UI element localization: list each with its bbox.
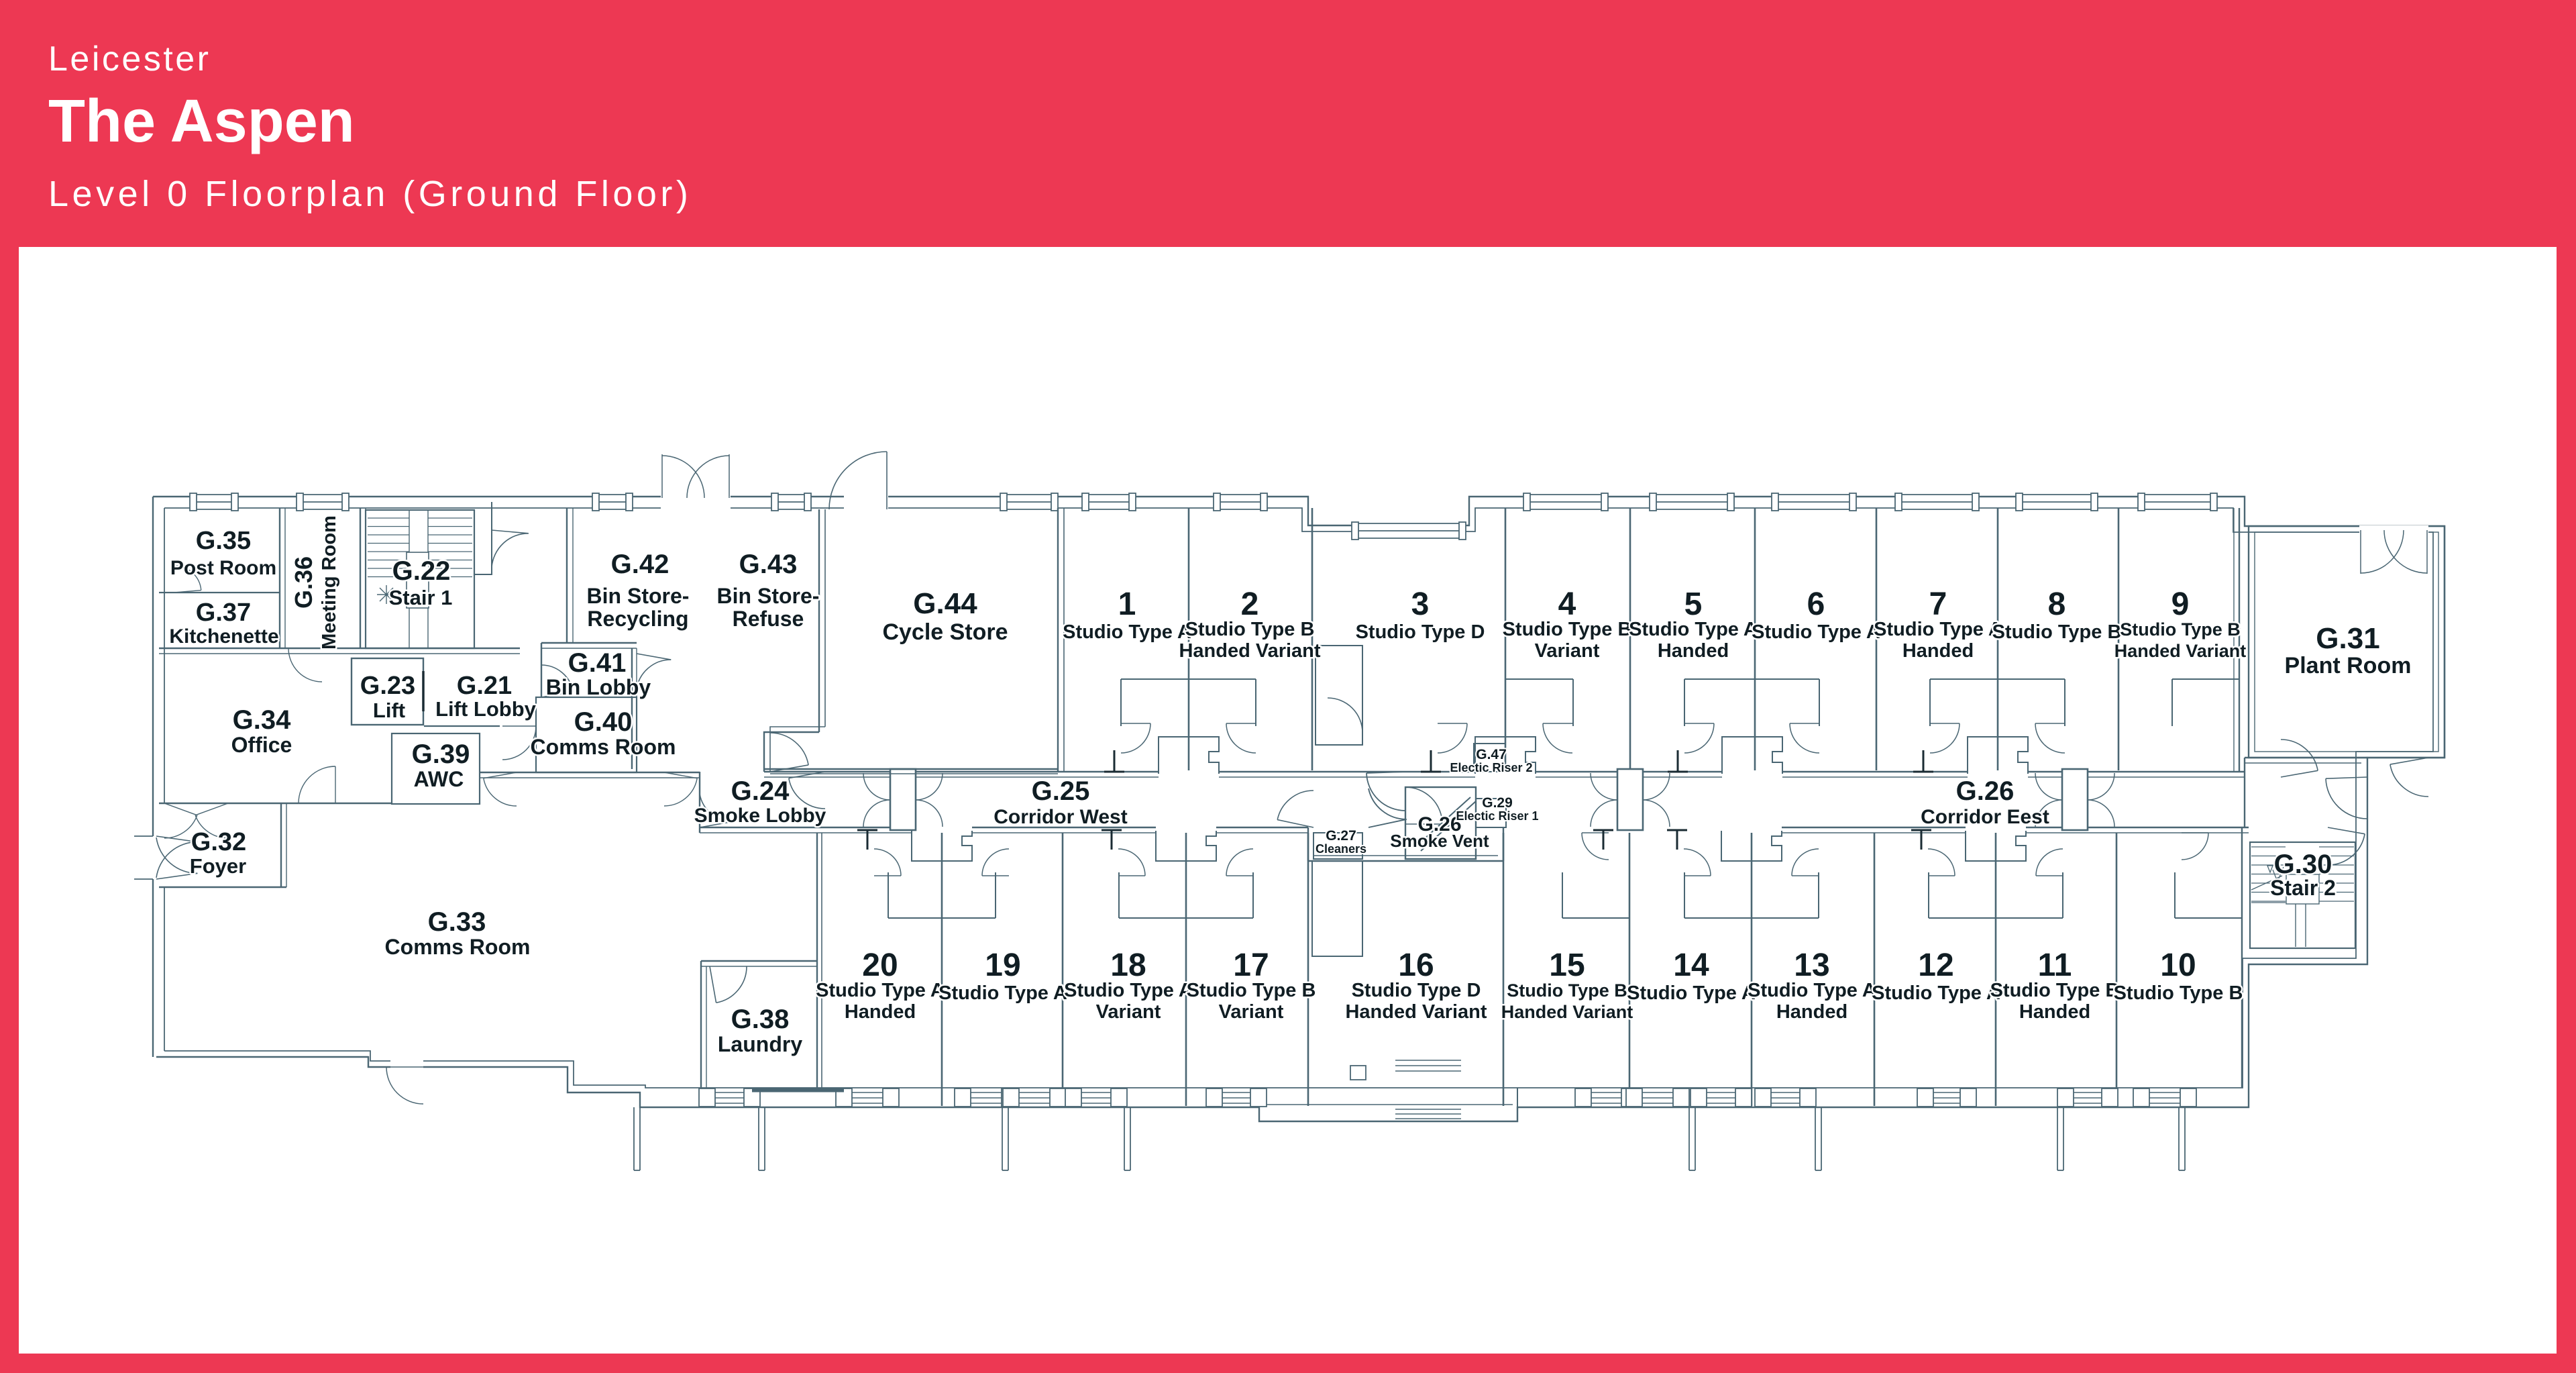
svg-text:Handed: Handed <box>1776 1001 1847 1023</box>
svg-text:Variant: Variant <box>1219 1001 1284 1023</box>
svg-text:Handed Variant: Handed Variant <box>1179 640 1320 662</box>
svg-text:G.33: G.33 <box>428 907 486 937</box>
svg-text:Kitchenette: Kitchenette <box>169 625 278 648</box>
svg-text:Comms Room: Comms Room <box>385 935 531 959</box>
svg-text:G.34: G.34 <box>233 705 291 735</box>
svg-text:Studio Type B: Studio Type B <box>1507 980 1627 1001</box>
svg-text:G.47: G.47 <box>1476 747 1507 762</box>
svg-text:Handed Variant: Handed Variant <box>1501 1002 1633 1022</box>
svg-text:3: 3 <box>1411 587 1430 622</box>
svg-text:Recycling: Recycling <box>587 607 688 631</box>
svg-text:4: 4 <box>1558 587 1576 622</box>
svg-text:7: 7 <box>1929 587 1947 622</box>
svg-text:2: 2 <box>1241 587 1259 622</box>
svg-text:Meeting Room: Meeting Room <box>319 515 340 650</box>
svg-text:Studio Type A: Studio Type A <box>1064 980 1193 1001</box>
svg-text:Variant: Variant <box>1535 640 1600 662</box>
svg-text:Studio Type A: Studio Type A <box>1872 982 2000 1004</box>
svg-text:5: 5 <box>1684 587 1703 622</box>
svg-text:G.32: G.32 <box>191 828 246 856</box>
svg-text:G.25: G.25 <box>1032 776 1090 806</box>
svg-text:Studio Type B: Studio Type B <box>1990 980 2120 1001</box>
svg-text:16: 16 <box>1398 948 1434 983</box>
svg-text:Studio Type D: Studio Type D <box>1356 621 1485 643</box>
svg-text:Cycle Store: Cycle Store <box>882 619 1008 645</box>
svg-text:G.30: G.30 <box>2274 850 2332 879</box>
svg-text:Laundry: Laundry <box>718 1032 802 1056</box>
svg-text:Studio Type A: Studio Type A <box>816 980 945 1001</box>
svg-text:Handed: Handed <box>1902 640 1974 662</box>
svg-text:Smoke Lobby: Smoke Lobby <box>694 805 826 827</box>
svg-text:Studio Type B: Studio Type B <box>2120 619 2241 640</box>
svg-text:G.44: G.44 <box>913 587 977 620</box>
svg-text:18: 18 <box>1110 948 1146 983</box>
svg-text:Electic Riser 1: Electic Riser 1 <box>1456 809 1538 823</box>
svg-text:Studio Type B: Studio Type B <box>1185 619 1315 640</box>
svg-text:Electic Riser 2: Electic Riser 2 <box>1450 761 1532 774</box>
svg-text:Foyer: Foyer <box>190 854 246 878</box>
svg-text:G.38: G.38 <box>731 1005 790 1034</box>
svg-text:20: 20 <box>862 948 898 983</box>
svg-text:Stair 1: Stair 1 <box>389 586 453 609</box>
svg-text:Bin Store-: Bin Store- <box>717 584 820 608</box>
svg-text:Studio Type B: Studio Type B <box>1992 621 2122 643</box>
svg-text:10: 10 <box>2160 948 2196 983</box>
svg-text:G.37: G.37 <box>196 599 251 627</box>
svg-text:13: 13 <box>1794 948 1829 983</box>
svg-text:12: 12 <box>1918 948 1953 983</box>
svg-text:G.27: G.27 <box>1326 828 1356 844</box>
svg-text:G.24: G.24 <box>731 776 790 806</box>
svg-text:Studio Type D: Studio Type D <box>1352 980 1481 1001</box>
svg-text:Plant Room: Plant Room <box>2285 653 2412 678</box>
svg-text:Office: Office <box>231 733 292 757</box>
svg-text:Handed: Handed <box>2019 1001 2090 1023</box>
svg-text:G.31: G.31 <box>2316 622 2379 655</box>
svg-text:Stair 2: Stair 2 <box>2270 876 2336 900</box>
svg-text:G.26: G.26 <box>1956 776 2015 806</box>
svg-text:G.41: G.41 <box>568 648 627 678</box>
svg-text:Bin Lobby: Bin Lobby <box>546 675 651 699</box>
svg-text:Corridor West: Corridor West <box>994 806 1127 828</box>
svg-text:G.23: G.23 <box>360 672 415 700</box>
svg-text:Lift: Lift <box>373 699 405 722</box>
svg-text:Studio Type A: Studio Type A <box>1627 982 1756 1004</box>
svg-text:G.42: G.42 <box>611 550 669 579</box>
svg-text:Handed: Handed <box>1658 640 1729 662</box>
svg-text:Refuse: Refuse <box>733 607 804 631</box>
svg-text:G.36: G.36 <box>290 556 317 609</box>
svg-text:17: 17 <box>1233 948 1269 983</box>
svg-text:15: 15 <box>1549 948 1585 983</box>
svg-text:Studio Type A: Studio Type A <box>938 982 1067 1004</box>
svg-text:6: 6 <box>1807 587 1825 622</box>
svg-text:Studio Type A: Studio Type A <box>1752 621 1880 643</box>
svg-text:G.40: G.40 <box>574 707 633 737</box>
svg-text:Post Room: Post Room <box>170 557 276 579</box>
svg-text:Corridor Eest: Corridor Eest <box>1921 806 2049 828</box>
svg-text:9: 9 <box>2171 587 2190 622</box>
svg-text:Comms Room: Comms Room <box>531 735 676 759</box>
svg-text:Smoke Vent: Smoke Vent <box>1390 831 1489 851</box>
svg-text:8: 8 <box>2048 587 2066 622</box>
svg-text:Handed Variant: Handed Variant <box>2114 641 2247 661</box>
svg-text:Handed: Handed <box>845 1001 916 1023</box>
svg-text:Studio Type A: Studio Type A <box>1748 980 1876 1001</box>
svg-text:Studio Type B: Studio Type B <box>2114 982 2243 1004</box>
svg-text:Studio Type B: Studio Type B <box>1187 980 1316 1001</box>
svg-text:Studio Type A: Studio Type A <box>1629 619 1758 640</box>
svg-text:G.35: G.35 <box>196 527 251 555</box>
svg-text:Variant: Variant <box>1096 1001 1161 1023</box>
svg-text:1: 1 <box>1118 587 1136 622</box>
svg-text:Cleaners: Cleaners <box>1316 842 1366 856</box>
svg-text:11: 11 <box>2038 948 2072 983</box>
svg-text:Studio Type B: Studio Type B <box>1503 619 1632 640</box>
svg-text:Studio Type A: Studio Type A <box>1874 619 2002 640</box>
svg-text:14: 14 <box>1673 948 1709 983</box>
svg-text:G.22: G.22 <box>392 556 451 586</box>
svg-text:Lift Lobby: Lift Lobby <box>435 697 537 721</box>
svg-text:G.21: G.21 <box>457 672 512 700</box>
svg-text:Bin Store-: Bin Store- <box>587 584 690 608</box>
svg-text:Studio Type A: Studio Type A <box>1063 621 1191 643</box>
svg-text:G.39: G.39 <box>412 740 470 769</box>
svg-text:G.29: G.29 <box>1482 795 1513 811</box>
svg-text:19: 19 <box>985 948 1020 983</box>
svg-text:G.43: G.43 <box>739 550 798 579</box>
svg-text:Handed Variant: Handed Variant <box>1345 1001 1487 1023</box>
svg-text:AWC: AWC <box>414 767 464 791</box>
